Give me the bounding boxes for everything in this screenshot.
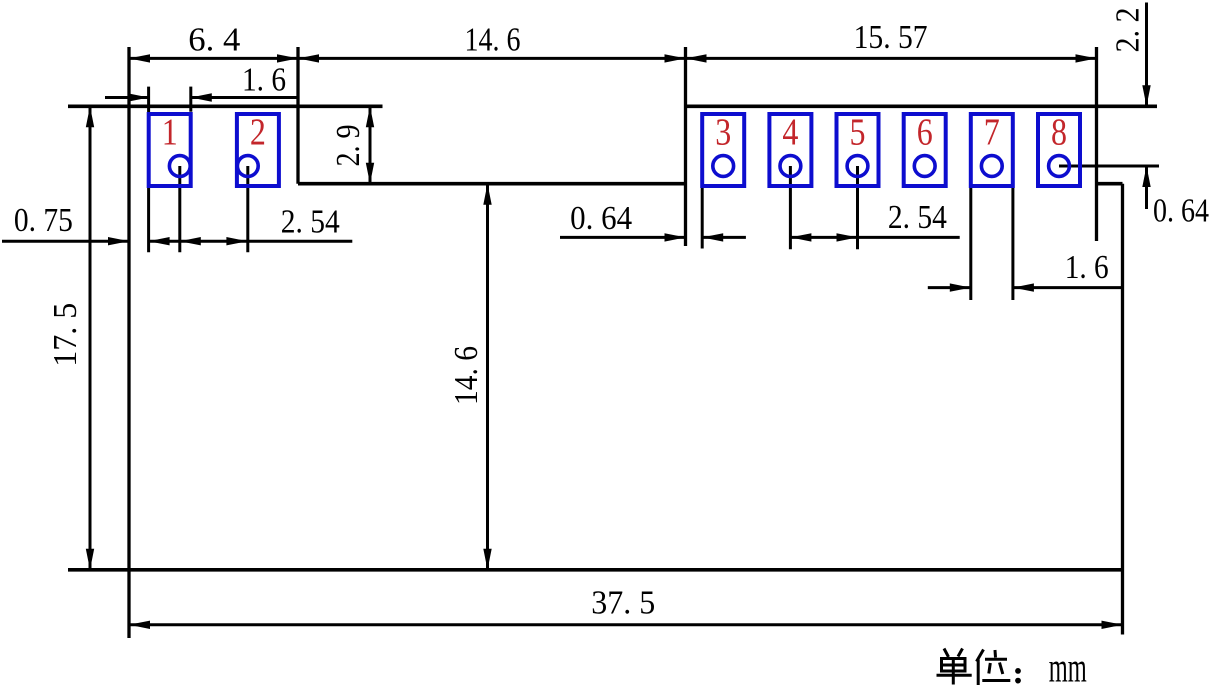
svg-text:1. 6: 1. 6 — [1065, 249, 1109, 286]
svg-text:14. 6: 14. 6 — [448, 346, 485, 405]
svg-text:1. 6: 1. 6 — [242, 62, 286, 99]
svg-text:2. 54: 2. 54 — [888, 199, 947, 236]
svg-text:2. 54: 2. 54 — [281, 204, 340, 241]
svg-text:7: 7 — [984, 112, 1000, 154]
svg-text:0. 64: 0. 64 — [1153, 193, 1209, 230]
svg-text:37. 5: 37. 5 — [591, 585, 655, 622]
svg-text:14. 6: 14. 6 — [465, 22, 521, 59]
svg-text:mm: mm — [1049, 646, 1087, 692]
svg-text:15. 57: 15. 57 — [854, 19, 928, 56]
svg-text:2: 2 — [250, 112, 266, 154]
svg-text:2. 2: 2. 2 — [1110, 8, 1147, 53]
svg-text:0. 75: 0. 75 — [14, 202, 73, 239]
svg-text:8: 8 — [1051, 112, 1067, 154]
svg-text:6. 4: 6. 4 — [188, 22, 240, 59]
svg-text:3: 3 — [715, 112, 731, 154]
svg-text:4: 4 — [782, 112, 798, 154]
svg-text:6: 6 — [917, 112, 933, 154]
svg-text:0. 64: 0. 64 — [570, 200, 632, 237]
svg-text:1: 1 — [162, 112, 178, 154]
svg-text:2. 9: 2. 9 — [330, 125, 367, 167]
svg-text:5: 5 — [850, 112, 866, 154]
svg-text:17. 5: 17. 5 — [47, 303, 84, 367]
